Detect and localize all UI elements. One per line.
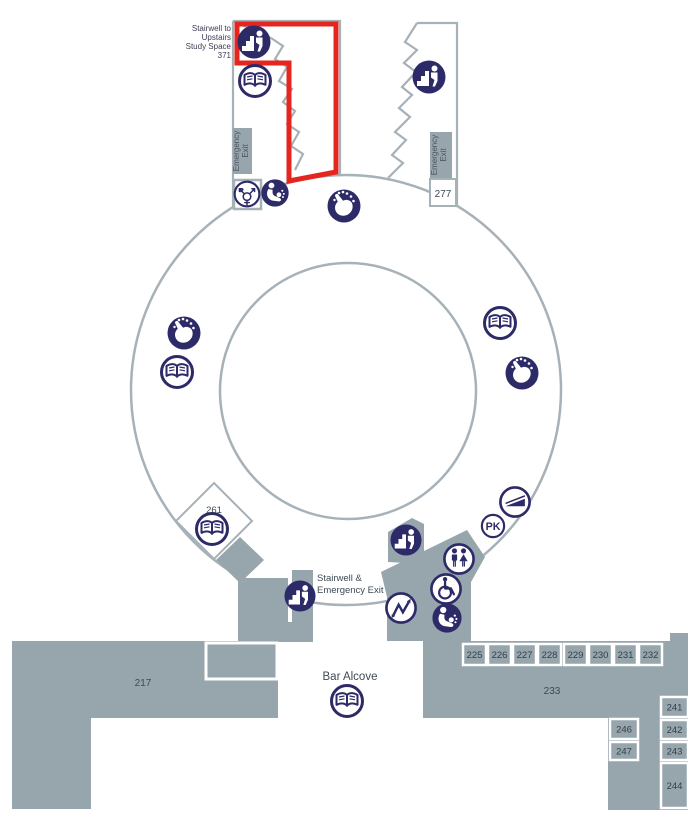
- room-number: 246: [616, 724, 632, 735]
- all-gender-restroom-icon: [235, 182, 260, 207]
- stairwell-icon: [413, 61, 446, 94]
- inner-ring-wall: [220, 263, 476, 519]
- emergency-exit-word2: Exit: [439, 148, 448, 162]
- room-number: 228: [542, 650, 558, 661]
- room-box-232: 232: [639, 644, 662, 665]
- room-box-230: 230: [589, 644, 612, 665]
- room-box-244: 244: [661, 763, 688, 808]
- room-label-277: 277: [435, 189, 452, 200]
- emergency-exit-word1: Emergency: [232, 131, 241, 171]
- stairwell-icon: [284, 580, 315, 611]
- room-number: 225: [467, 650, 483, 661]
- room-box-241: 241: [661, 697, 688, 717]
- room-box-231: 231: [614, 644, 637, 665]
- stairwell-icon: [238, 26, 271, 59]
- room-number: 226: [492, 650, 508, 661]
- room-number: 247: [616, 746, 632, 757]
- highlight-label-line2: Upstairs: [202, 33, 231, 42]
- stairwell-icon: [390, 524, 421, 555]
- room-box-242: 242: [661, 720, 688, 739]
- room-box-246: 246: [610, 719, 638, 739]
- room-number: 244: [667, 781, 683, 792]
- floor-map-page: 2252262272282292302312322412422432442462…: [0, 0, 700, 835]
- stairs-direction-icon: [386, 593, 415, 622]
- highlight-label-line4: 371: [218, 51, 232, 60]
- room-number: 230: [593, 650, 609, 661]
- room-number: 242: [667, 725, 683, 736]
- book-area-icon: [332, 686, 363, 717]
- room-number: 229: [568, 650, 584, 661]
- interactive-touch-icon: [328, 190, 361, 223]
- room-label-217: 217: [135, 678, 152, 689]
- bar-alcove-label: Bar Alcove: [323, 671, 378, 683]
- room-label-233: 233: [544, 686, 561, 697]
- room-label-261: 261: [206, 505, 222, 516]
- stairwell-strip: [238, 622, 313, 642]
- book-area-icon: [240, 66, 271, 97]
- stairwell-label-line2: Emergency Exit: [317, 585, 384, 596]
- pk-icon-label: PK: [486, 521, 501, 533]
- highlight-label-line3: Study Space: [186, 42, 232, 51]
- room-box-228: 228: [538, 644, 561, 665]
- room-box-227: 227: [513, 644, 536, 665]
- interactive-touch-icon: [168, 317, 201, 350]
- unlabeled-room-box: [206, 643, 277, 679]
- room-number: 232: [643, 650, 659, 661]
- room-number: 227: [517, 650, 533, 661]
- room-box-247: 247: [610, 742, 638, 760]
- room-233-notch: [670, 633, 688, 642]
- restroom-icon: [444, 544, 473, 573]
- room-number: 231: [618, 650, 634, 661]
- emergency-exit-word1: Emergency: [430, 135, 439, 175]
- book-area-icon: [485, 308, 516, 339]
- book-area-icon: [162, 357, 193, 388]
- room-box-229: 229: [564, 644, 587, 665]
- lactation-room-icon: [432, 603, 461, 632]
- interactive-touch-icon: [506, 357, 539, 390]
- stairwell-label-line1: Stairwell &: [317, 573, 363, 584]
- room-box-226: 226: [488, 644, 511, 665]
- scanner-icon: [500, 487, 529, 516]
- pk-icon: PK: [482, 515, 504, 537]
- lactation-room-icon: [261, 179, 288, 206]
- room-number: 243: [667, 746, 683, 757]
- floor-map: 2252262272282292302312322412422432442462…: [0, 0, 700, 835]
- accessible-restroom-icon: [431, 574, 460, 603]
- highlight-label-line1: Stairwell to: [192, 24, 232, 33]
- book-area-icon: [197, 514, 228, 545]
- room-box-243: 243: [661, 742, 688, 760]
- room-box-225: 225: [463, 644, 486, 665]
- room-number: 241: [667, 702, 683, 713]
- emergency-exit-word2: Exit: [241, 144, 250, 158]
